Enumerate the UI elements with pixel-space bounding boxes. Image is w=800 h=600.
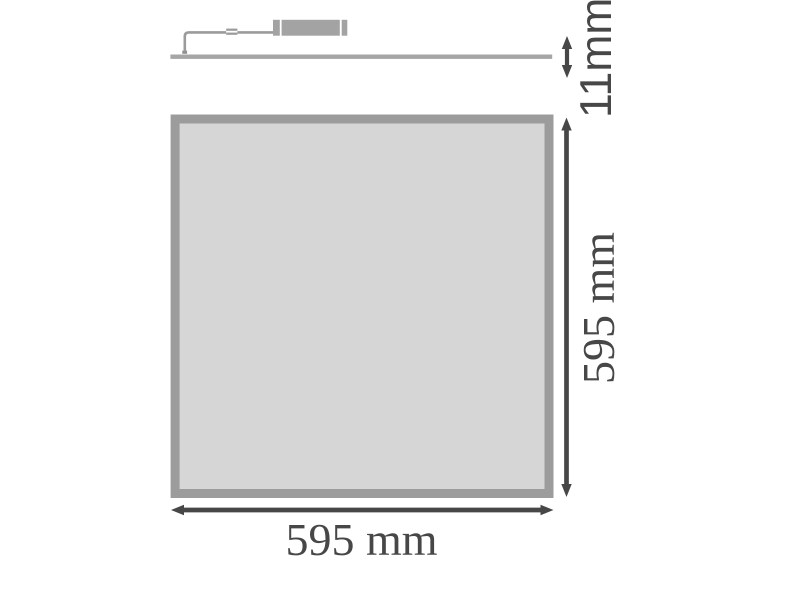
svg-text:595 mm: 595 mm	[573, 232, 624, 384]
svg-text:595 mm: 595 mm	[285, 514, 437, 565]
svg-text:11mm: 11mm	[572, 0, 621, 118]
